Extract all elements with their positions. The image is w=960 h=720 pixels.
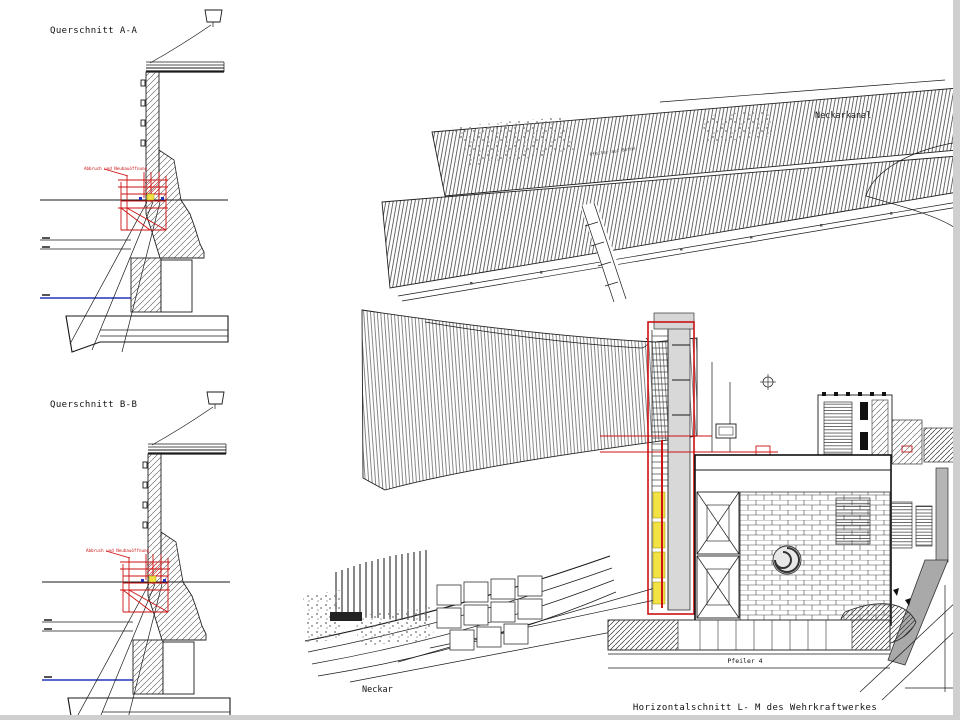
section-bb-red-note: Abbruch und Neubauöffnung (86, 548, 150, 553)
section-aa-title: Querschnitt A-A (50, 26, 137, 36)
stilling-blocks (437, 576, 542, 650)
spiral-case (773, 546, 801, 574)
turbine-bay (697, 556, 739, 618)
cad-sheet: Querschnitt A-A Abbruch und Neubauöffnun… (0, 0, 960, 720)
dimension-marks (712, 362, 776, 452)
pier-strip: Pfeiler 4 (608, 620, 890, 668)
section-bb-title: Querschnitt B-B (50, 400, 137, 410)
window-edge-bottom (0, 715, 960, 720)
stairs (916, 506, 932, 546)
cross-section-drawing-bb (42, 392, 230, 720)
cross-section-drawing-aa (40, 10, 228, 352)
cross-section-aa: Querschnitt A-A Abbruch und Neubauöffnun… (40, 10, 228, 352)
cross-section-bb: Querschnitt B-B Abbruch und Neubauöffnun… (42, 392, 230, 720)
section-aa-red-note: Abbruch und Neubauöffnung (84, 166, 148, 171)
stairs (836, 498, 870, 544)
river-label: Neckar (362, 685, 393, 695)
turbine-bay (697, 492, 739, 554)
plan-caption: Horizontalschnitt L- M des Wehrkraftwerk… (633, 703, 877, 713)
crosshair-icon (760, 374, 776, 390)
window-edge-right (953, 0, 960, 720)
plan-view: Neckarkanal Pfeiler auf Beton (303, 80, 958, 713)
riprap-patch (356, 606, 434, 646)
apron-fan (362, 310, 697, 490)
stairs (890, 502, 912, 548)
powerhouse (695, 455, 891, 625)
tiny-label-box (330, 612, 362, 621)
pier-label: Pfeiler 4 (727, 657, 762, 665)
